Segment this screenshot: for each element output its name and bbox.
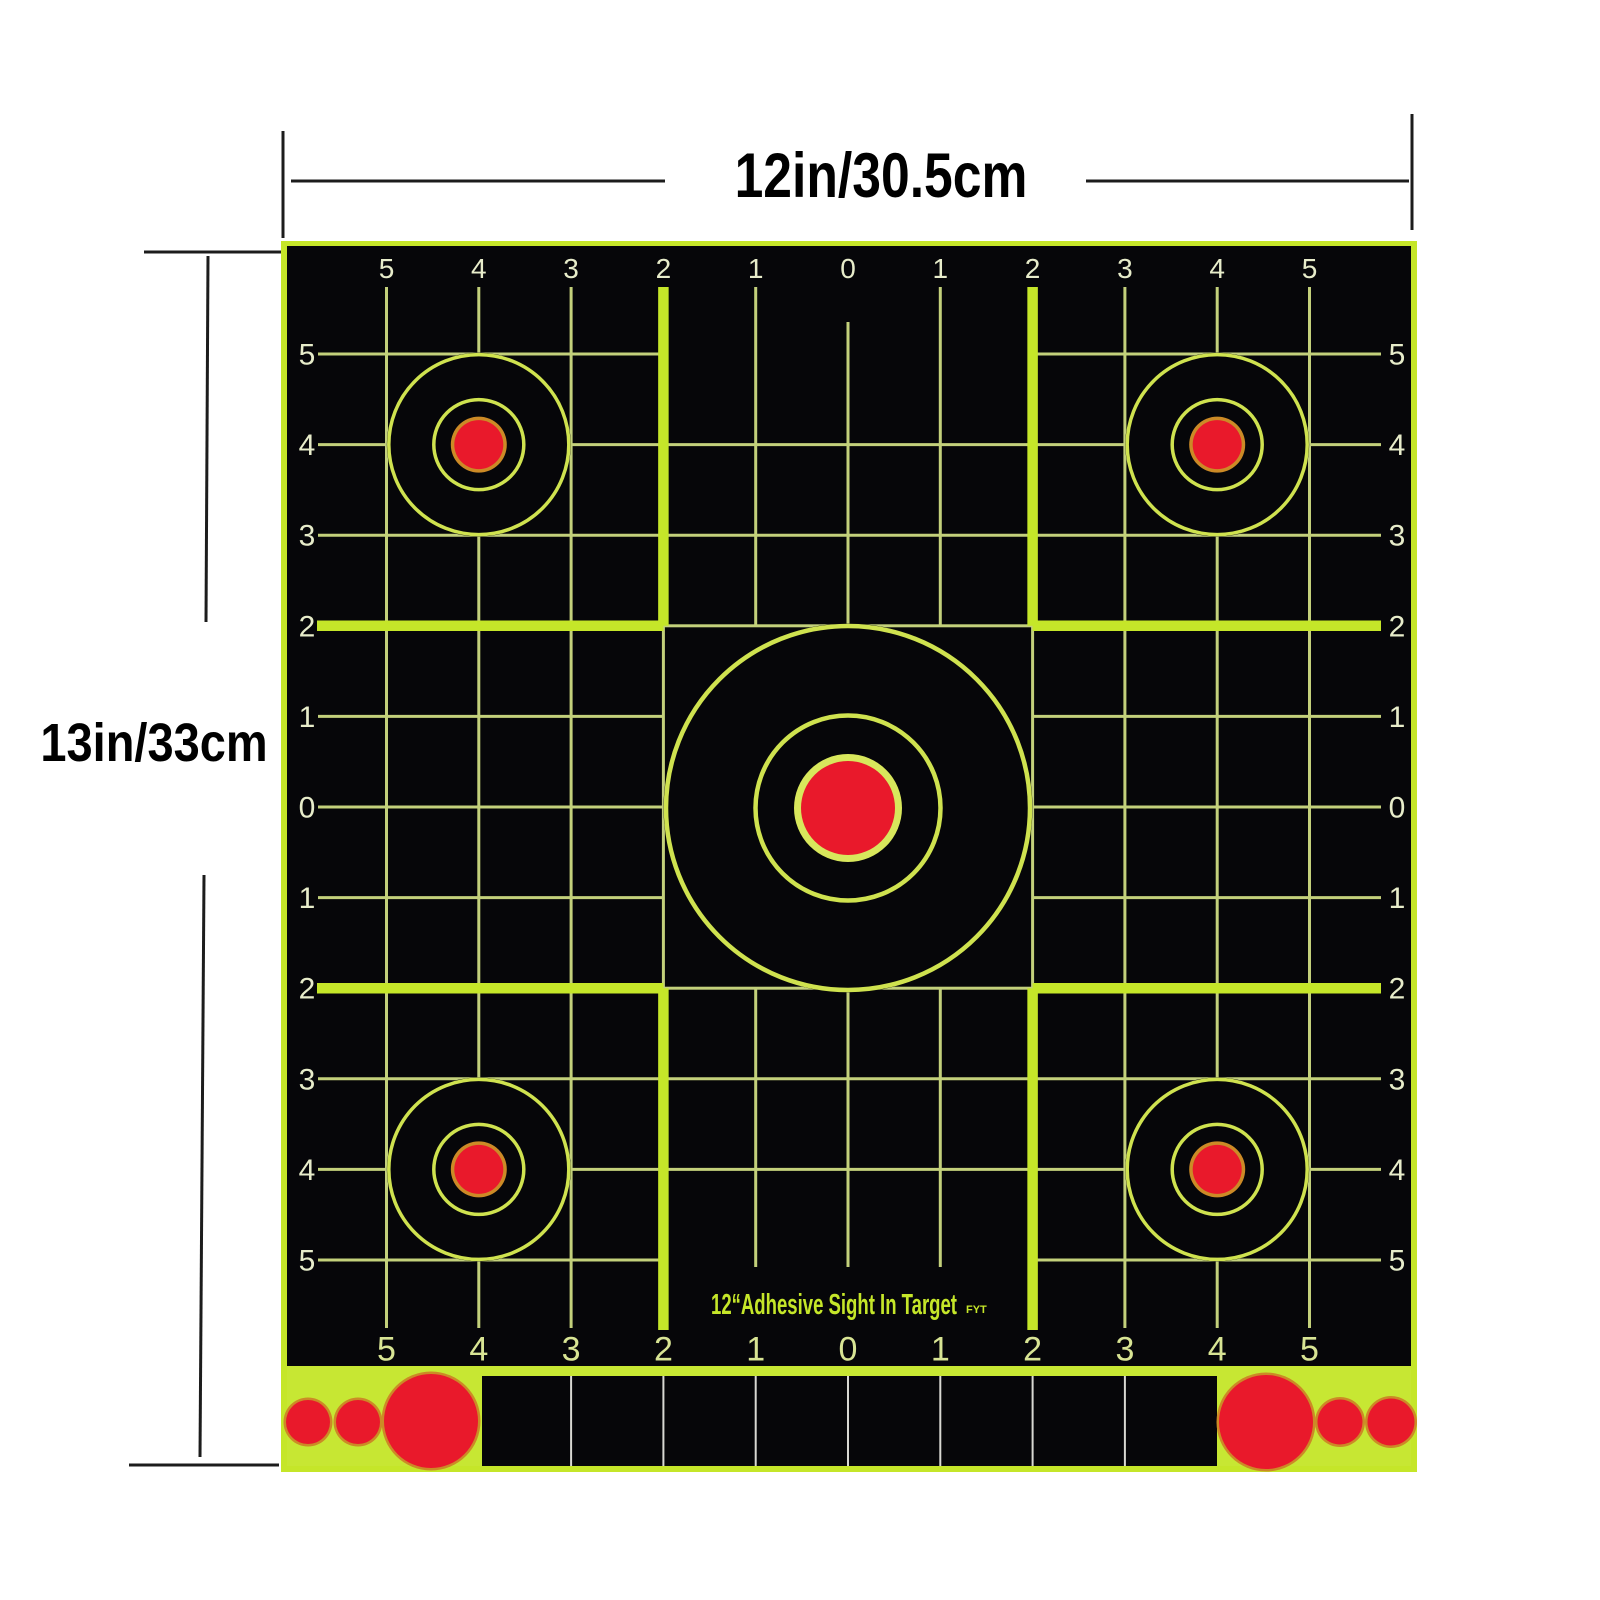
svg-text:2: 2 — [1389, 610, 1406, 643]
svg-text:2: 2 — [1389, 973, 1406, 1006]
svg-text:12“Adhesive Sight In Target: 12“Adhesive Sight In Target — [711, 1289, 957, 1321]
svg-text:3: 3 — [1117, 253, 1133, 284]
svg-text:5: 5 — [1389, 1245, 1406, 1278]
svg-text:5: 5 — [299, 339, 316, 372]
svg-text:2: 2 — [1023, 1331, 1042, 1369]
svg-text:1: 1 — [299, 701, 316, 734]
svg-text:3: 3 — [299, 1063, 316, 1096]
svg-text:4: 4 — [1208, 1331, 1227, 1369]
svg-text:12in/30.5cm: 12in/30.5cm — [735, 141, 1028, 211]
svg-text:13in/33cm: 13in/33cm — [40, 712, 267, 773]
svg-text:5: 5 — [377, 1331, 396, 1369]
svg-text:0: 0 — [1389, 792, 1406, 825]
svg-text:5: 5 — [1302, 253, 1318, 284]
svg-text:4: 4 — [299, 1154, 316, 1187]
svg-text:4: 4 — [1209, 253, 1225, 284]
svg-text:3: 3 — [299, 520, 316, 553]
svg-text:4: 4 — [1389, 429, 1406, 462]
svg-text:2: 2 — [1025, 253, 1041, 284]
svg-text:3: 3 — [1389, 1063, 1406, 1096]
svg-text:0: 0 — [839, 1331, 858, 1369]
svg-text:4: 4 — [471, 253, 487, 284]
svg-text:4: 4 — [299, 429, 316, 462]
svg-text:3: 3 — [562, 1331, 581, 1369]
svg-text:5: 5 — [299, 1245, 316, 1278]
svg-text:1: 1 — [1389, 701, 1406, 734]
svg-text:0: 0 — [840, 253, 856, 284]
svg-text:1: 1 — [748, 253, 764, 284]
svg-text:1: 1 — [931, 1331, 950, 1369]
svg-text:1: 1 — [746, 1331, 765, 1369]
svg-text:2: 2 — [299, 973, 316, 1006]
svg-text:3: 3 — [1115, 1331, 1134, 1369]
svg-text:1: 1 — [933, 253, 949, 284]
svg-text:2: 2 — [299, 610, 316, 643]
svg-text:5: 5 — [1389, 339, 1406, 372]
svg-text:4: 4 — [1389, 1154, 1406, 1187]
svg-text:2: 2 — [656, 253, 672, 284]
svg-text:5: 5 — [379, 253, 395, 284]
svg-text:2: 2 — [654, 1331, 673, 1369]
svg-text:1: 1 — [1389, 882, 1406, 915]
svg-text:4: 4 — [469, 1331, 488, 1369]
svg-text:3: 3 — [563, 253, 579, 284]
svg-text:3: 3 — [1389, 520, 1406, 553]
svg-text:FYT: FYT — [966, 1304, 987, 1316]
svg-text:1: 1 — [299, 882, 316, 915]
svg-text:0: 0 — [299, 792, 316, 825]
svg-text:5: 5 — [1300, 1331, 1319, 1369]
